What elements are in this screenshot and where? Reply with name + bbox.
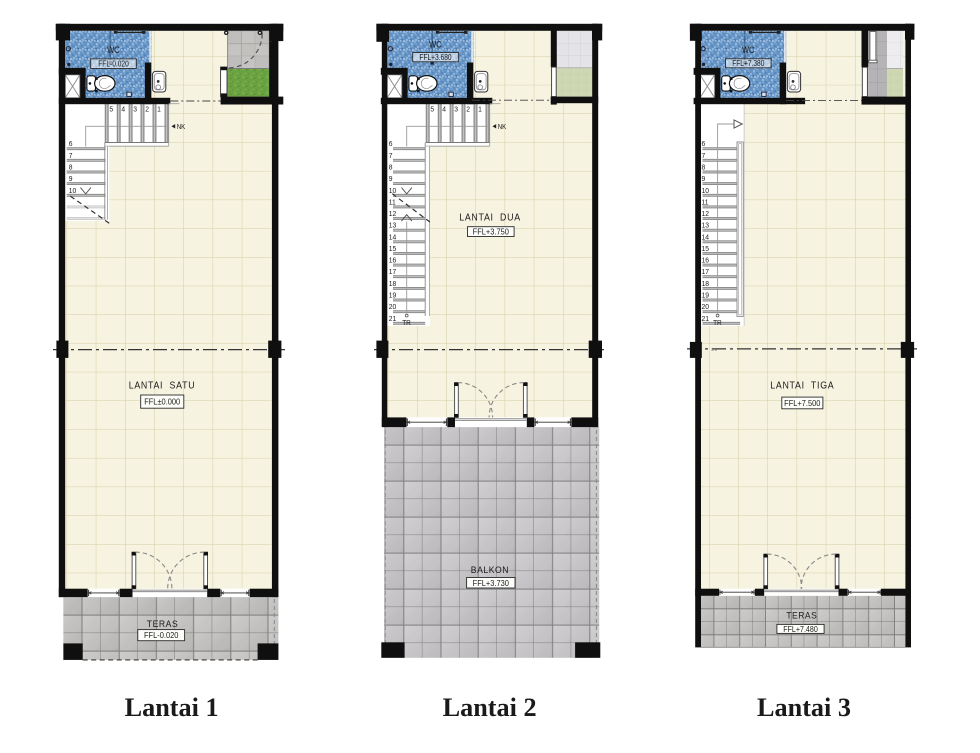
svg-text:14: 14 (702, 233, 710, 241)
svg-text:10: 10 (702, 186, 710, 194)
svg-text:16: 16 (389, 256, 397, 264)
svg-text:WC: WC (107, 45, 120, 55)
svg-text:19: 19 (389, 291, 397, 299)
svg-text:FFL-0.020: FFL-0.020 (144, 631, 179, 640)
svg-text:7: 7 (69, 151, 73, 159)
svg-text:BALKON: BALKON (471, 565, 509, 576)
svg-text:18: 18 (389, 280, 397, 288)
svg-text:12: 12 (702, 210, 710, 218)
svg-text:21: 21 (702, 314, 710, 322)
svg-text:21: 21 (389, 314, 397, 322)
svg-text:NK: NK (177, 123, 186, 130)
svg-text:FFL-0.020: FFL-0.020 (98, 59, 129, 69)
svg-text:10: 10 (69, 186, 77, 194)
svg-text:5: 5 (430, 105, 434, 113)
svg-text:15: 15 (389, 245, 397, 253)
svg-text:16: 16 (702, 256, 710, 264)
svg-text:14: 14 (389, 233, 397, 241)
svg-text:11: 11 (702, 198, 709, 206)
svg-text:8: 8 (389, 163, 393, 171)
svg-text:TR: TR (713, 320, 722, 327)
svg-text:8: 8 (69, 163, 73, 171)
svg-text:7: 7 (389, 151, 393, 159)
svg-text:17: 17 (389, 268, 397, 276)
svg-text:6: 6 (389, 140, 393, 148)
svg-text:TERAS: TERAS (786, 610, 817, 621)
svg-text:18: 18 (702, 280, 710, 288)
svg-text:1: 1 (157, 105, 161, 113)
svg-text:3: 3 (133, 105, 137, 113)
svg-text:5: 5 (109, 105, 113, 113)
svg-text:9: 9 (702, 175, 706, 183)
svg-text:4: 4 (121, 105, 125, 113)
svg-text:8: 8 (702, 163, 706, 171)
svg-text:WC: WC (742, 45, 755, 55)
svg-text:17: 17 (702, 268, 710, 276)
svg-text:FFL+7.500: FFL+7.500 (784, 399, 821, 408)
svg-text:4: 4 (442, 105, 446, 113)
svg-text:9: 9 (389, 175, 393, 183)
svg-text:13: 13 (702, 221, 710, 229)
svg-text:WC: WC (429, 40, 442, 50)
svg-text:FFL+7.480: FFL+7.480 (783, 624, 818, 633)
svg-text:17b: 17b (711, 348, 717, 352)
svg-text:12: 12 (389, 210, 397, 218)
svg-text:FFL+7.380: FFL+7.380 (732, 59, 764, 69)
svg-text:LANTAI DUA: LANTAI DUA (459, 212, 521, 223)
svg-text:LANTAI SATU: LANTAI SATU (129, 380, 196, 391)
svg-text:LANTAI TIGA: LANTAI TIGA (770, 380, 834, 391)
svg-text:Lantai 1: Lantai 1 (125, 693, 219, 722)
svg-text:FFL±0.000: FFL±0.000 (144, 397, 181, 406)
svg-text:9: 9 (69, 175, 73, 183)
svg-text:Lantai 2: Lantai 2 (443, 693, 537, 722)
svg-text:6: 6 (702, 140, 706, 148)
svg-text:2: 2 (145, 105, 149, 113)
svg-text:TERAS: TERAS (147, 619, 178, 630)
svg-text:2: 2 (466, 105, 470, 113)
svg-text:20: 20 (702, 303, 710, 311)
svg-text:NK: NK (498, 123, 507, 130)
svg-text:FFL+3.750: FFL+3.750 (473, 227, 510, 236)
svg-text:13: 13 (389, 221, 397, 229)
svg-text:6: 6 (69, 140, 73, 148)
svg-text:20: 20 (389, 303, 397, 311)
svg-text:TR: TR (402, 320, 411, 327)
svg-text:Lantai 3: Lantai 3 (757, 693, 851, 722)
svg-text:1: 1 (478, 105, 482, 113)
svg-text:19: 19 (702, 291, 710, 299)
svg-text:FFL+3.730: FFL+3.730 (473, 578, 510, 587)
svg-text:15: 15 (702, 245, 710, 253)
svg-text:11: 11 (389, 198, 396, 206)
svg-text:FFL+3.680: FFL+3.680 (419, 52, 451, 62)
svg-text:7: 7 (702, 151, 706, 159)
svg-text:3: 3 (454, 105, 458, 113)
